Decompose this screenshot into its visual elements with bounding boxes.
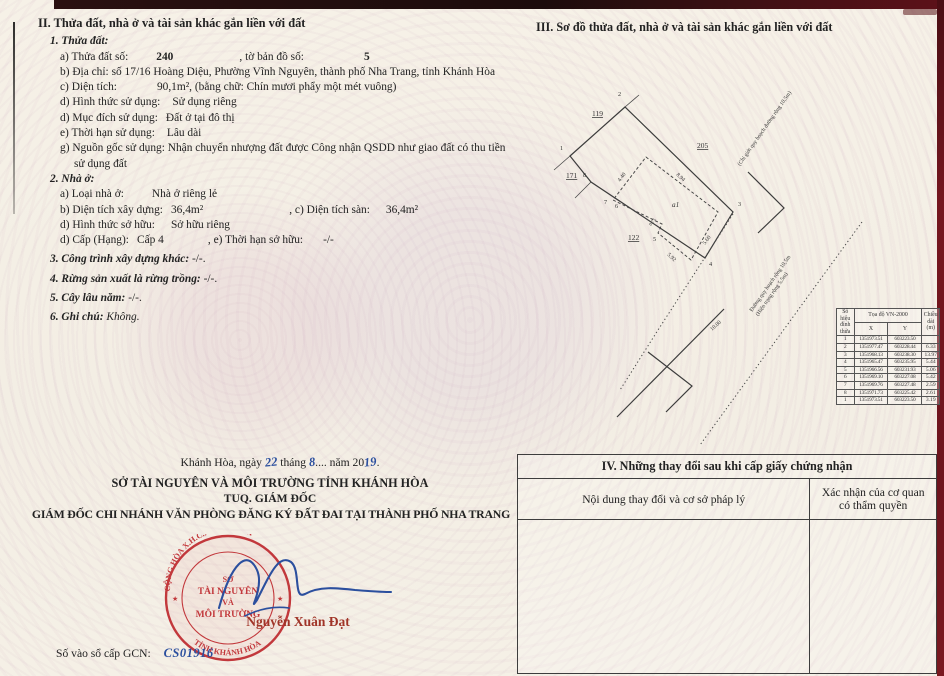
cell-d [922,336,940,344]
house-type-line: a) Loại nhà ở:Nhà ở riêng lẻ [38,187,518,202]
cell-x: 1351977.47 [854,343,888,351]
item3-value: -/-. [192,253,206,265]
table-row: 41351965.47603235.955.44 [837,359,940,367]
cell-n: 5 [837,366,855,374]
handwritten-year: 19 [363,454,377,470]
item5-line: 5. Cây lâu năm: -/-. [38,291,518,306]
build-area-value: 36,4m² [171,204,203,216]
section-iv: IV. Những thay đổi sau khi cấp giấy chứn… [517,454,937,674]
cell-n: 6 [837,374,855,382]
map-sheet-label: , tờ bản đồ số: [239,51,304,63]
cell-x: 1351973.51 [854,336,888,344]
cell-x: 1351966.56 [854,366,888,374]
cell-y: 603235.95 [888,359,922,367]
road-edge-line [617,309,724,417]
address-label: b) Địa chỉ: [60,66,109,78]
item6-line: 6. Ghi chú: Không. [38,310,518,325]
map-sheet-value: 5 [364,51,370,63]
col-y-header: Y [888,322,922,336]
dim-right: 5.60 [702,235,713,247]
cell-n: 3 [837,351,855,359]
table-row: 51351966.56603231.935.06 [837,366,940,374]
cell-x: 1351969.76 [854,381,888,389]
handwritten-day: 22 [264,454,278,470]
gcn-serial-label: Số vào sổ cấp GCN: [56,647,151,660]
vertex-2: 2 [618,91,621,98]
col-coords-header: Tọa độ VN-2000 [854,309,922,323]
coords-header-row: Số hiệu đỉnh thửa Tọa độ VN-2000 Chiều d… [837,309,940,323]
vertex-5: 5 [653,236,656,243]
table-row: 31351968.13603238.3013.97 [837,351,940,359]
boundary-extension-nw [554,156,570,170]
cell-d: 2.59 [922,381,940,389]
purpose-value: Đất ở tại đô thị [166,112,235,124]
cell-y: 603223.50 [888,336,922,344]
floor-area-value: 36,4m² [386,204,418,216]
signer-role: GIÁM ĐỐC CHI NHÁNH VĂN PHÒNG ĐĂNG KÝ ĐẤT… [6,507,536,522]
cell-x: 1351969.10 [854,374,888,382]
road-name-line1: Đường quy hoạch rộng 10,5m [749,254,793,313]
land-purpose-line: d) Mục đích sử dụng:Đất ở tại đô thị [38,111,518,126]
page-fold-line [13,22,15,214]
house-footprint [613,157,718,260]
floor-area-label: , c) Diện tích sàn: [289,204,370,216]
cell-x: 1351965.47 [854,359,888,367]
dim-left: 4.40 [617,172,628,184]
house-area-label: a1 [672,201,679,209]
boundary-extension-n [625,95,639,107]
item5-value: -/-. [128,292,142,304]
cadastral-diagram: 2 1 8 3 4 5 6 7 119 171 122 205 a1 8.94 … [552,76,942,476]
authority-confirm-header: Xác nhận của cơ quan có thẩm quyền [809,479,936,519]
house-ownership-line: d) Hình thức sở hữu:Sở hữu riêng [38,218,518,233]
vertex-7: 7 [604,199,607,206]
signer-name: Nguyễn Xuân Đạt [213,614,383,630]
dim-bottom: 5.92 [666,252,677,263]
section-iv-header: Nội dung thay đổi và cơ sở pháp lý Xác n… [518,479,936,520]
cell-n: 8 [837,389,855,397]
ownership-label: d) Hình thức sở hữu: [60,219,155,231]
cell-y: 603225.42 [888,389,922,397]
land-term-line: e) Thời hạn sử dụng:Lâu dài [38,126,518,141]
cell-x: 1351971.73 [854,389,888,397]
origin-label: g) Nguồn gốc sử dụng: [60,142,165,154]
section-iii-title: III. Sơ đồ thửa đất, nhà ở và tài sản kh… [536,20,936,35]
cell-n: 4 [837,359,855,367]
handwritten-month: 8 [308,455,316,471]
cell-d: 5.42 [922,374,940,382]
document-page: II. Thửa đất, nhà ở và tài sản khác gắn … [0,0,944,676]
house-type-value: Nhà ở riêng lẻ [152,188,217,200]
cell-y: 603223.50 [888,397,922,405]
adjacent-parcel-205: 205 [697,141,709,150]
purpose-label: d) Mục đích sử dụng: [60,112,158,124]
authority-confirm-cell [809,520,936,673]
table-row: 11351973.51603223.50 [837,336,940,344]
land-area-line: c) Diện tích:90,1m², (bằng chữ: Chín mươ… [38,80,518,95]
adjacent-parcel-119: 119 [592,109,603,118]
grade-label: d) Cấp (Hạng): [60,234,129,246]
year-label: năm 20 [330,456,364,469]
adjacent-parcel-171: 171 [566,171,578,180]
land-heading: 1. Thửa đất: [38,34,518,49]
item6-label: 6. Ghi chú: [50,311,103,323]
table-row: 81351971.73603225.422.61 [837,389,940,397]
change-content-cell [518,520,809,673]
use-form-label: d) Hình thức sử dụng: [60,96,160,108]
signature-stroke [219,560,391,608]
cell-d: 2.61 [922,389,940,397]
vertex-4: 4 [709,261,712,268]
vertex-3: 3 [738,201,741,208]
land-origin-line: g) Nguồn gốc sử dụng: Nhận chuyển nhượng… [38,141,518,172]
area-label: c) Diện tích: [60,81,117,93]
term-value: Lâu dài [167,127,201,139]
issuing-org: SỞ TÀI NGUYÊN VÀ MÔI TRƯỜNG TỈNH KHÁNH H… [30,476,510,491]
item4-value: -/-. [204,273,218,285]
house-grade-line: d) Cấp (Hạng):Cấp 4, e) Thời hạn sở hữu:… [38,233,518,248]
cell-y: 603227.48 [888,381,922,389]
cell-y: 603227.08 [888,374,922,382]
item4-line: 4. Rừng sản xuất là rừng trồng: -/-. [38,272,518,287]
month-label: tháng [280,456,306,469]
land-address-line: b) Địa chỉ: số 17/16 Hoàng Diệu, Phường … [38,65,518,80]
stamp-star-left: ★ [172,595,178,603]
cell-n: 7 [837,381,855,389]
adjacent-parcel-122: 122 [628,233,640,242]
date-line: Khánh Hòa, ngày 22 tháng 8.... năm 2019. [60,455,500,470]
cell-d: 6.33 [922,343,940,351]
table-row: 61351969.10603227.085.42 [837,374,940,382]
gcn-serial-value: CS01916 [164,646,214,660]
table-row: 71351969.76603227.482.59 [837,381,940,389]
cell-n: 1 [837,336,855,344]
table-row: 21351977.47603228.446.33 [837,343,940,351]
cell-d: 3.19 [922,397,940,405]
area-words: (bằng chữ: Chín mươi phẩy một mét vuông) [195,81,397,93]
section-iv-body [518,520,936,673]
dots: .... [315,456,327,469]
parcel-outline [570,107,733,258]
item5-label: 5. Cây lâu năm: [50,292,125,304]
cell-y: 603231.93 [888,366,922,374]
vertex-8: 8 [583,172,586,179]
vertex-1: 1 [560,145,563,152]
land-parcel-line: a) Thửa đất số:240, tờ bản đồ số:5 [38,50,518,65]
col-length-header: Chiều dài (m) [922,309,940,336]
neighbor-corner-upper [748,172,784,233]
change-content-header: Nội dung thay đổi và cơ sở pháp lý [518,479,809,519]
term-label: e) Thời hạn sử dụng: [60,127,155,139]
road-name-text: Đường quy hoạch rộng 10,5m (Hiện trạng r… [749,254,799,317]
signature [205,542,400,624]
use-form-value: Sử dụng riêng [172,96,236,108]
land-use-form-line: d) Hình thức sử dụng:Sử dụng riêng [38,95,518,110]
coordinate-table: Số hiệu đỉnh thửa Tọa độ VN-2000 Chiều d… [836,308,940,405]
gcn-serial-line: Số vào sổ cấp GCN: CS01916 [56,646,214,661]
parcel-number-value: 240 [156,51,173,63]
cell-d: 5.06 [922,366,940,374]
section-ii: II. Thửa đất, nhà ở và tài sản khác gắn … [38,16,518,326]
col-vertex-header: Số hiệu đỉnh thửa [837,309,855,336]
house-type-label: a) Loại nhà ở: [60,188,124,200]
boundary-extension-sw [575,182,591,198]
address-value: số 17/16 Hoàng Diệu, Phường Vĩnh Nguyên,… [112,66,495,78]
item3-line: 3. Công trình xây dựng khác: -/-. [38,252,518,267]
section-iv-title: IV. Những thay đổi sau khi cấp giấy chứn… [518,455,936,479]
section-ii-title: II. Thửa đất, nhà ở và tài sản khác gắn … [38,16,518,31]
own-term-label: , e) Thời hạn sở hữu: [208,234,303,246]
build-area-label: b) Diện tích xây dựng: [60,204,163,216]
cover-corner-mark [903,9,937,15]
item4-label: 4. Rừng sản xuất là rừng trồng: [50,273,201,285]
vertex-6: 6 [615,203,618,210]
cell-n: 1 [837,397,855,405]
parcel-number-label: a) Thửa đất số: [60,51,128,63]
col-x-header: X [854,322,888,336]
cell-y: 603238.30 [888,351,922,359]
cell-x: 1351973.51 [854,397,888,405]
cell-n: 2 [837,343,855,351]
house-heading: 2. Nhà ở: [38,172,518,187]
ownership-value: Sở hữu riêng [171,219,230,231]
authorized-title: TUQ. GIÁM ĐỐC [30,492,510,505]
cell-x: 1351968.13 [854,351,888,359]
neighbor-corner-lower [648,352,692,412]
grade-value: Cấp 4 [137,234,164,246]
date-prefix: Khánh Hòa, ngày [180,456,261,469]
cell-d: 5.44 [922,359,940,367]
item3-label: 3. Công trình xây dựng khác: [50,253,189,265]
item6-value: Không. [106,311,139,323]
table-row: 11351973.51603223.503.19 [837,397,940,405]
cell-d: 13.97 [922,351,940,359]
house-area-line: b) Diện tích xây dựng:36,4m², c) Diện tí… [38,203,518,218]
book-cover-top-edge [54,0,944,9]
own-term-value: -/- [323,234,334,246]
cell-y: 603228.44 [888,343,922,351]
boundary-road-text: (Chỉ giới quy hoạch đường rộng 10,5m) [736,90,793,168]
dim-top: 8.94 [675,172,686,183]
area-value: 90,1m², [157,81,192,93]
